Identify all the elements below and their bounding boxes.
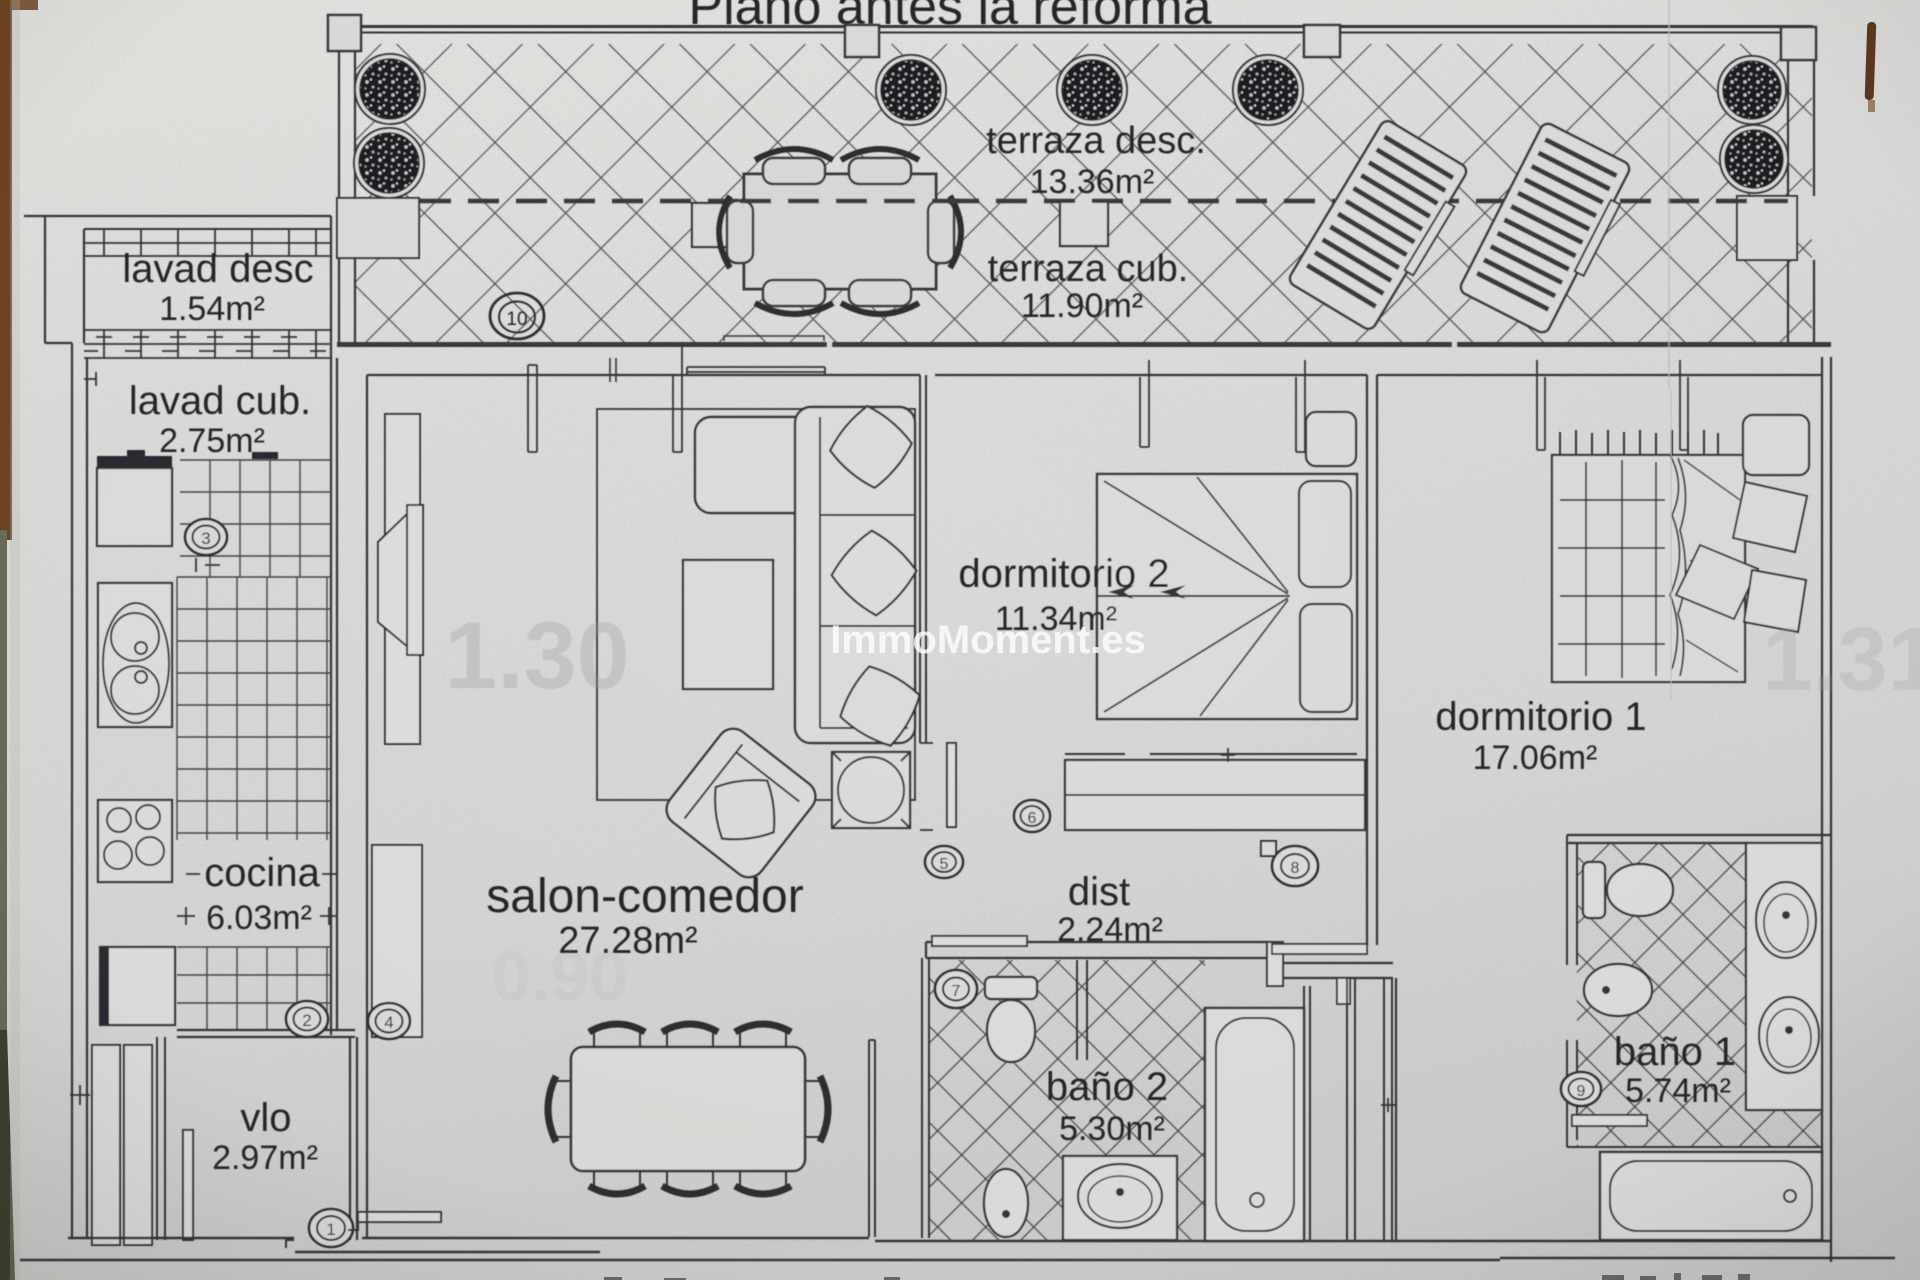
svg-text:ImmoMoment.es: ImmoMoment.es: [830, 618, 1146, 662]
